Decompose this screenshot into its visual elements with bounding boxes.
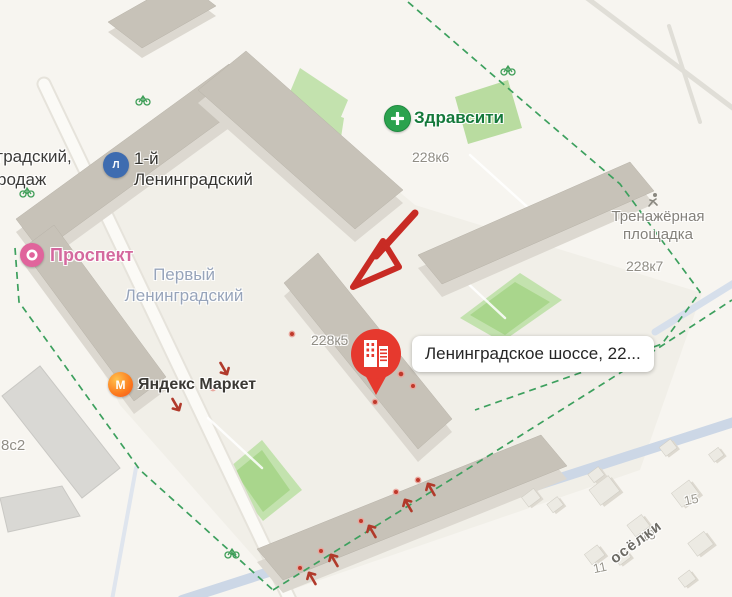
poi-label-cutoff-line2: родаж: [0, 169, 72, 192]
poi-company-line2: Ленинградский: [134, 170, 253, 191]
company-logo-icon[interactable]: Л: [103, 152, 129, 178]
house-number-11: 11: [592, 559, 608, 576]
poi-label-prospekt[interactable]: Проспект: [50, 245, 133, 266]
district-line1: Первый: [110, 264, 258, 285]
building-number-228k7: 228к7: [626, 258, 663, 274]
bicycle-icon: [225, 549, 239, 558]
building-number-228k6: 228к6: [412, 149, 449, 165]
poi-gym-line2: площадка: [597, 226, 719, 244]
entrance-dot: [297, 565, 302, 570]
company-logo-glyph: Л: [112, 160, 119, 171]
prospekt-icon[interactable]: [20, 243, 44, 267]
poi-label-zdravcity[interactable]: Здравсити: [414, 108, 504, 128]
map-canvas[interactable]: градский, родаж Л 1-й Ленинградский Здра…: [0, 0, 732, 597]
poi-label-company[interactable]: 1-й Ленинградский: [134, 149, 253, 190]
house-number-15: 15: [683, 491, 700, 509]
district-label[interactable]: Первый Ленинградский: [110, 264, 258, 307]
poi-label-cutoff[interactable]: градский, родаж: [0, 146, 72, 192]
bicycle-icon: [136, 96, 150, 105]
entrance-dot: [358, 518, 363, 523]
place-balloon-label[interactable]: Ленинградское шоссе, 22...: [412, 336, 654, 372]
poi-company-line1: 1-й: [134, 149, 253, 170]
entrance-dot: [289, 331, 294, 336]
bicycle-icon: [501, 66, 515, 75]
entrance-dot: [415, 477, 420, 482]
building-number-8s2: 8с2: [1, 437, 25, 454]
poi-label-market[interactable]: Яндекс Маркет: [138, 376, 256, 394]
yandex-market-icon[interactable]: M: [108, 372, 133, 397]
pharmacy-plus-icon[interactable]: [384, 105, 411, 132]
poi-label-cutoff-line1: градский,: [0, 146, 72, 169]
market-glyph: M: [116, 378, 126, 392]
poi-gym-line1: Тренажёрная: [597, 208, 719, 226]
entrance-dot: [318, 548, 323, 553]
entrance-dot: [410, 383, 415, 388]
ring-glyph: [25, 248, 39, 262]
district-line2: Ленинградский: [110, 285, 258, 306]
building-slab-nw: [108, 0, 216, 58]
poi-label-gym[interactable]: Тренажёрная площадка: [597, 208, 719, 244]
building-number-228k5: 228к5: [311, 332, 348, 348]
entrance-dot: [393, 489, 398, 494]
place-pin[interactable]: [347, 327, 407, 403]
plus-glyph: [391, 112, 404, 125]
runner-icon: [645, 192, 661, 208]
